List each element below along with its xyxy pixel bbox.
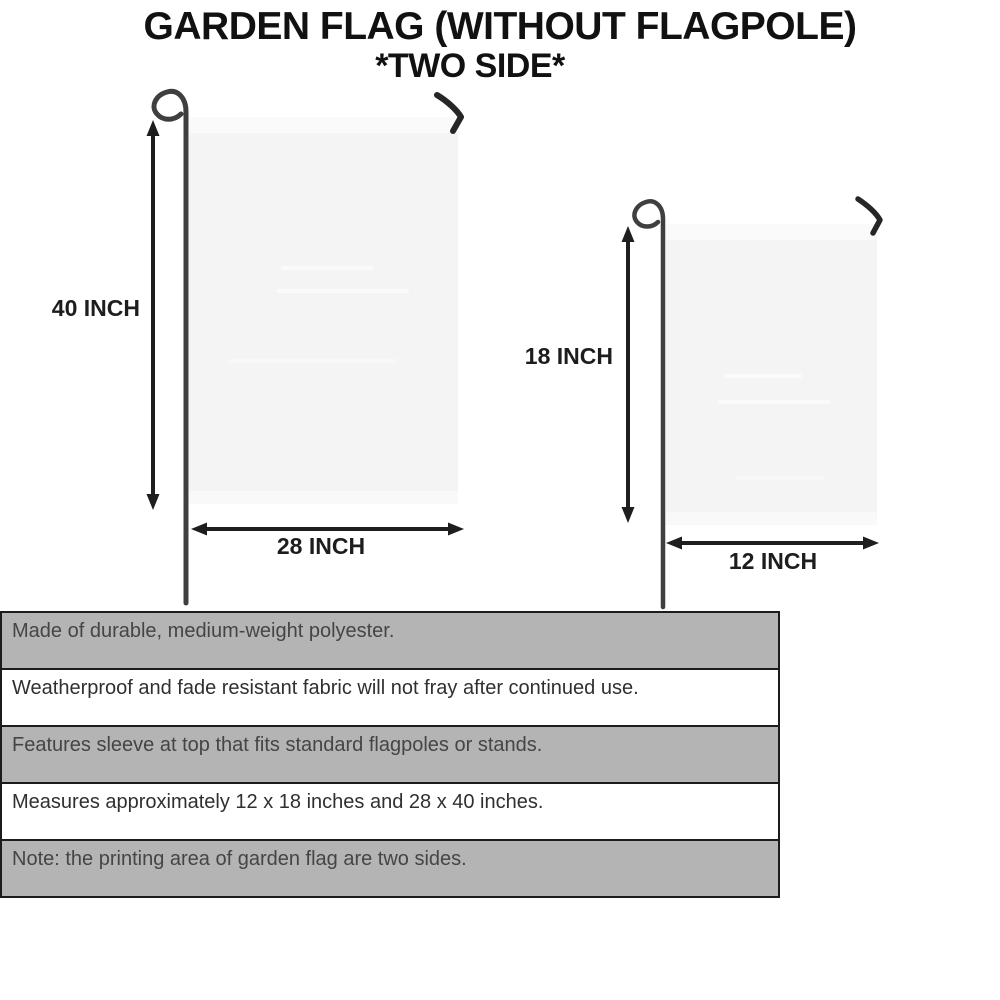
height-arrow-small xyxy=(622,226,635,523)
arrow-head-down-icon xyxy=(622,507,635,523)
arrow-head-up-icon xyxy=(147,120,160,136)
flagpole-small-icon xyxy=(634,201,663,607)
arrow-head-right-icon xyxy=(448,523,464,536)
features-table: Made of durable, medium-weight polyester… xyxy=(0,611,780,898)
feature-row: Features sleeve at top that fits standar… xyxy=(0,725,780,784)
feature-text: Measures approximately 12 x 18 inches an… xyxy=(12,791,543,813)
height-label-large: 40 INCH xyxy=(20,295,140,322)
arrow-head-down-icon xyxy=(147,494,160,510)
feature-row: Made of durable, medium-weight polyester… xyxy=(0,611,780,670)
feature-text: Made of durable, medium-weight polyester… xyxy=(12,620,394,642)
height-label-small: 18 INCH xyxy=(493,343,613,370)
feature-row: Weatherproof and fade resistant fabric w… xyxy=(0,668,780,727)
feature-row: Measures approximately 12 x 18 inches an… xyxy=(0,782,780,841)
feature-text: Note: the printing area of garden flag a… xyxy=(12,848,467,870)
arrow-head-up-icon xyxy=(622,226,635,242)
flag-hook-large-icon xyxy=(437,95,461,131)
width-label-large: 28 INCH xyxy=(221,533,421,560)
flag-hook-small-icon xyxy=(858,199,880,233)
product-infographic: GARDEN FLAG (WITHOUT FLAGPOLE) *TWO SIDE… xyxy=(0,0,1000,1000)
feature-text: Weatherproof and fade resistant fabric w… xyxy=(12,677,639,699)
height-arrow-large xyxy=(147,120,160,510)
feature-text: Features sleeve at top that fits standar… xyxy=(12,734,542,756)
arrow-head-left-icon xyxy=(191,523,207,536)
width-label-small: 12 INCH xyxy=(673,548,873,575)
flagpole-large-icon xyxy=(154,91,186,603)
feature-row: Note: the printing area of garden flag a… xyxy=(0,839,780,898)
